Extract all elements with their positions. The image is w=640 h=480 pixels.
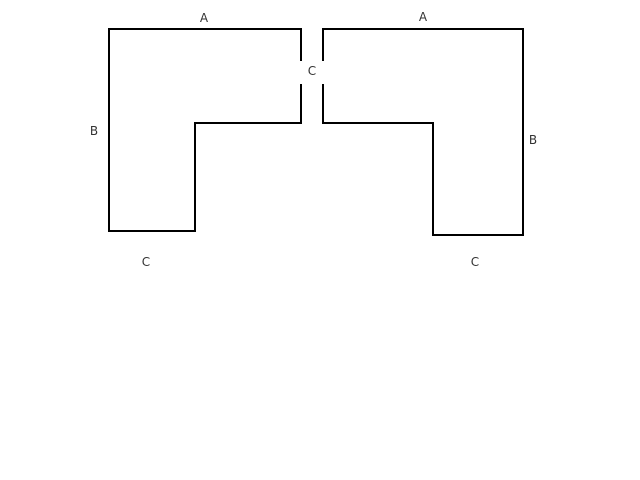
label-a-left-top-side: A — [200, 11, 209, 25]
label-c-right-bottom-side: C — [471, 255, 479, 269]
label-c-center-gap: C — [308, 64, 316, 78]
label-c-left-bottom-side: C — [142, 255, 150, 269]
label-b-left-side: B — [90, 124, 98, 138]
geometry-diagram: AABBCCC — [0, 0, 640, 480]
right-l-shape-outline — [323, 29, 523, 235]
label-b-right-side: B — [529, 133, 537, 147]
label-a-right-top-side: A — [419, 10, 428, 24]
diagram-canvas: AABBCCC — [0, 0, 640, 480]
left-l-shape-outline — [109, 29, 301, 231]
